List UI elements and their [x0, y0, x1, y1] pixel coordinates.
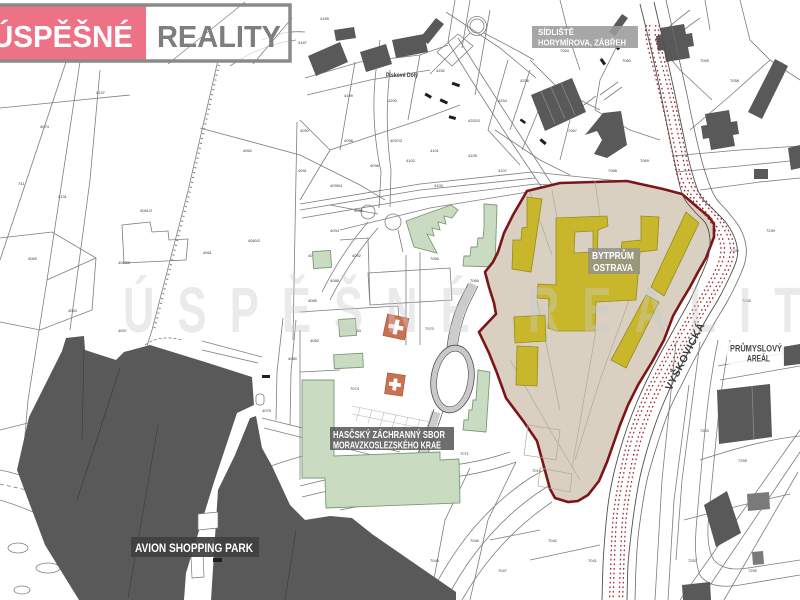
svg-text:7071: 7071 — [460, 451, 470, 456]
svg-text:4095: 4095 — [354, 208, 364, 213]
svg-text:AREÁL: AREÁL — [747, 354, 770, 364]
svg-text:4096: 4096 — [370, 163, 380, 168]
svg-text:7257: 7257 — [688, 558, 698, 563]
svg-text:4105: 4105 — [468, 153, 478, 158]
svg-text:4090: 4090 — [300, 128, 310, 133]
svg-text:7042: 7042 — [548, 538, 558, 543]
svg-text:4101: 4101 — [430, 148, 440, 153]
svg-text:4131: 4131 — [58, 194, 68, 199]
svg-text:7059: 7059 — [700, 58, 710, 63]
svg-text:4062: 4062 — [243, 148, 253, 153]
svg-text:4063: 4063 — [68, 308, 78, 313]
svg-text:4061: 4061 — [203, 250, 213, 255]
svg-text:7060: 7060 — [622, 58, 632, 63]
svg-text:4256: 4256 — [520, 78, 530, 83]
svg-text:4097/2: 4097/2 — [390, 138, 403, 143]
svg-text:7045: 7045 — [430, 558, 440, 563]
svg-text:4074: 4074 — [40, 124, 50, 129]
svg-text:AVION SHOPPING PARK: AVION SHOPPING PARK — [135, 543, 254, 555]
svg-text:4252/2: 4252/2 — [468, 118, 481, 123]
svg-text:7239: 7239 — [766, 228, 776, 233]
svg-text:7058: 7058 — [730, 78, 740, 83]
svg-text:4252: 4252 — [436, 68, 446, 73]
svg-text:Pískové Doly: Pískové Doly — [386, 72, 418, 79]
svg-text:HASČSKÝ ZÁCHRANNÝ SBOR: HASČSKÝ ZÁCHRANNÝ SBOR — [333, 428, 446, 441]
svg-text:PRŮMYSLOVÝ: PRŮMYSLOVÝ — [730, 343, 782, 354]
svg-text:4061/2: 4061/2 — [140, 208, 153, 213]
svg-text:7047: 7047 — [498, 568, 508, 573]
svg-text:4189: 4189 — [320, 16, 330, 21]
svg-text:OSTRAVA: OSTRAVA — [593, 263, 633, 274]
svg-text:4063/2: 4063/2 — [118, 260, 131, 265]
svg-text:BYTPRŮM: BYTPRŮM — [592, 248, 634, 262]
svg-text:4094: 4094 — [330, 228, 340, 233]
svg-text:4199: 4199 — [344, 93, 354, 98]
svg-text:HORYMÍROVA, ZÁBŘEH: HORYMÍROVA, ZÁBŘEH — [538, 39, 626, 48]
svg-text:7074: 7074 — [350, 386, 360, 391]
svg-text:SÍDLIŠTĚ: SÍDLIŠTĚ — [538, 28, 575, 37]
svg-text:741: 741 — [18, 181, 25, 186]
svg-text:4137: 4137 — [96, 90, 106, 95]
svg-text:REALITY: REALITY — [157, 19, 281, 54]
svg-text:4200: 4200 — [388, 98, 398, 103]
svg-text:MORAVZKOSLEZSKÉHO KRAE: MORAVZKOSLEZSKÉHO KRAE — [333, 439, 441, 452]
svg-text:4091: 4091 — [298, 168, 308, 173]
svg-text:ÚSPĚŠNÉ: ÚSPĚŠNÉ — [0, 18, 133, 54]
svg-text:7253: 7253 — [700, 428, 710, 433]
svg-text:4092: 4092 — [352, 253, 362, 258]
svg-text:4065: 4065 — [28, 256, 38, 261]
svg-text:4103: 4103 — [434, 183, 444, 188]
svg-text:7068: 7068 — [608, 168, 618, 173]
svg-text:7259: 7259 — [748, 568, 758, 573]
svg-text:4187: 4187 — [298, 40, 308, 45]
svg-text:7067: 7067 — [568, 128, 578, 133]
svg-text:7065: 7065 — [430, 256, 440, 261]
svg-text:7069: 7069 — [640, 158, 650, 163]
svg-text:4095/4: 4095/4 — [330, 183, 343, 188]
svg-text:7255: 7255 — [738, 458, 748, 463]
svg-text:4080: 4080 — [288, 356, 298, 361]
svg-text:4102: 4102 — [406, 158, 416, 163]
svg-text:4098: 4098 — [344, 138, 354, 143]
svg-text:4060/2: 4060/2 — [248, 238, 261, 243]
svg-text:7063: 7063 — [560, 48, 570, 53]
svg-text:4254: 4254 — [498, 98, 508, 103]
svg-text:4079: 4079 — [262, 408, 272, 413]
svg-text:7240: 7240 — [730, 248, 740, 253]
svg-text:4107: 4107 — [498, 168, 508, 173]
svg-text:7041: 7041 — [588, 558, 598, 563]
svg-text:7046: 7046 — [470, 538, 480, 543]
